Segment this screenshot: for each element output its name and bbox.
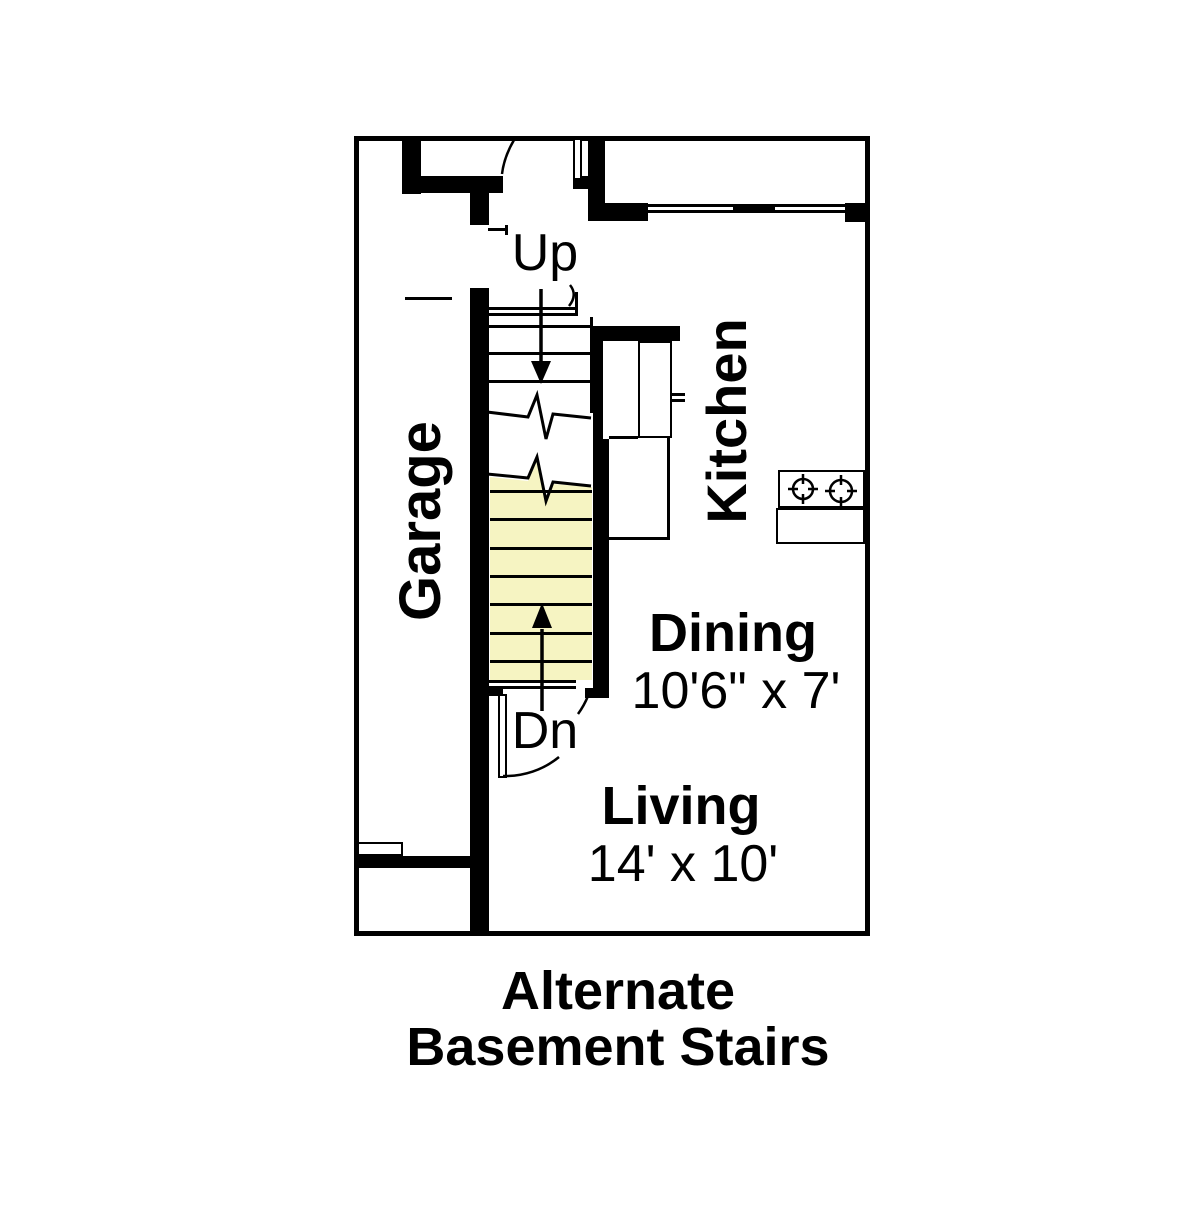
stair-edge-line	[590, 317, 593, 413]
stair-tread-line	[488, 325, 591, 328]
kitchen-cabinet	[638, 341, 672, 438]
stair-landing-line	[488, 680, 576, 683]
kitchen-north-wall	[593, 326, 680, 341]
door-jamb-line	[505, 225, 508, 235]
stair-up-label: Up	[512, 227, 578, 279]
room-dimensions-dining: 10'6" x 7'	[632, 665, 841, 717]
stair-right-wall	[593, 341, 603, 439]
room-label-garage: Garage	[392, 421, 450, 621]
cabinet-handle-tick	[672, 399, 685, 402]
wall-segment	[470, 193, 489, 225]
counter-edge-line	[667, 436, 670, 540]
cooktop-two-burners-icon	[778, 470, 865, 508]
stair-landing-line	[488, 686, 576, 689]
wall-end-cap	[585, 688, 609, 698]
sliding-door-panel	[733, 205, 775, 211]
garage-stair-wall	[470, 288, 489, 931]
stair-tread-line	[488, 380, 591, 383]
stair-tread-line	[490, 547, 592, 550]
stair-tread-line	[488, 352, 591, 355]
stair-tread-line	[490, 660, 592, 663]
plan-caption-line2: Basement Stairs	[406, 1020, 829, 1074]
kitchen-counter	[776, 508, 865, 544]
stair-tread-line	[490, 632, 592, 635]
stair-down-label: Dn	[512, 705, 578, 757]
room-label-dining: Dining	[649, 606, 817, 660]
stair-tread-line	[490, 603, 592, 606]
garage-interior-wall	[357, 856, 472, 868]
garage-vent-box	[357, 842, 403, 856]
garage-step-line	[405, 297, 452, 300]
counter-edge-line	[609, 436, 638, 439]
stair-landing-line	[488, 307, 578, 310]
wall-segment	[845, 203, 865, 222]
wall-segment	[588, 203, 648, 221]
plan-caption-line1: Alternate	[501, 964, 735, 1018]
cabinet-handle-tick	[672, 393, 685, 396]
counter-edge-line	[609, 537, 670, 540]
stair-right-wall	[593, 439, 609, 698]
door-jamb-line	[575, 292, 578, 314]
stair-landing-line	[488, 313, 578, 316]
floor-plan-canvas: Up Dn Garage Kitchen Dining 10'6" x 7' L…	[0, 0, 1200, 1208]
entry-door-leaf	[573, 140, 582, 178]
room-label-living: Living	[602, 779, 761, 833]
room-dimensions-living: 14' x 10'	[588, 838, 778, 890]
stair-tread-line	[490, 518, 592, 521]
wall-segment	[402, 176, 503, 193]
stair-tread-line	[490, 575, 592, 578]
wall-segment	[588, 140, 605, 206]
room-label-kitchen: Kitchen	[699, 318, 755, 523]
basement-door-leaf	[498, 694, 507, 778]
stair-tread-line	[490, 490, 592, 493]
